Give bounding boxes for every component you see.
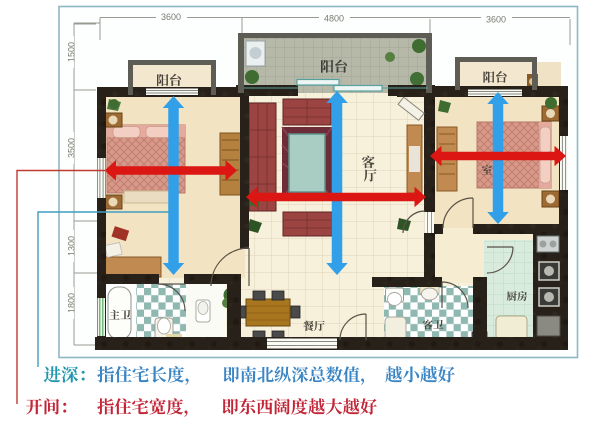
svg-text:1500: 1500 bbox=[66, 42, 76, 62]
svg-text:1300: 1300 bbox=[66, 236, 76, 256]
svg-text:3600: 3600 bbox=[161, 12, 181, 22]
svg-text:1800: 1800 bbox=[66, 293, 76, 313]
svg-text:4800: 4800 bbox=[324, 14, 344, 24]
svg-text:3500: 3500 bbox=[66, 138, 76, 158]
svg-text:3600: 3600 bbox=[486, 15, 506, 25]
